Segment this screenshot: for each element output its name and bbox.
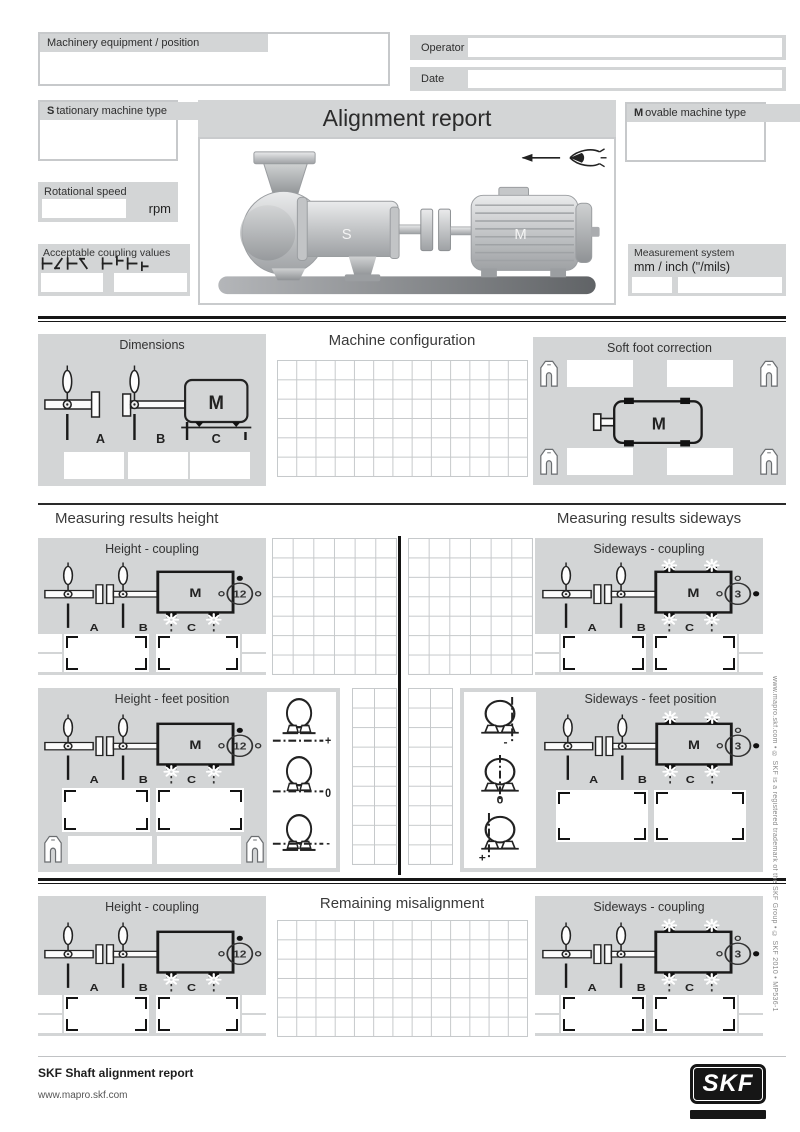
dimensions-schematic: MABC [41, 356, 263, 448]
svg-text:+: + [479, 853, 486, 864]
remaining-sideways-title: Sideways - coupling [535, 900, 763, 914]
vertical-divider [398, 536, 401, 875]
bracket-input-cell[interactable] [561, 995, 646, 1033]
svg-text:C: C [686, 775, 695, 786]
height-diagram-minus: - [269, 810, 333, 864]
svg-text:B: B [637, 623, 646, 634]
svg-text:A: A [90, 983, 100, 994]
machine-configuration-title: Machine configuration [277, 332, 527, 349]
height-feet-grid[interactable] [352, 688, 397, 865]
stationary-machine-type-field: Stationary machine type [38, 100, 178, 161]
remaining-sideways-schematic: ABC 3 [540, 918, 760, 996]
footer-divider [38, 1056, 786, 1057]
svg-text:0: 0 [497, 795, 504, 806]
rotational-speed-label: Rotational speed [44, 186, 127, 198]
svg-text:12: 12 [233, 589, 246, 600]
date-input[interactable] [468, 70, 782, 88]
soft-foot-title: Soft foot correction [533, 341, 786, 355]
svg-text:B: B [637, 983, 646, 994]
bracket-input-cell[interactable] [653, 634, 738, 672]
sideways-feet-input-front[interactable] [556, 790, 648, 842]
height-coupling-title: Height - coupling [38, 542, 266, 556]
sideways-coupling-inputs [535, 634, 763, 672]
remaining-sideways-inputs [535, 995, 763, 1033]
remaining-sideways-panel: Sideways - coupling ABC 3 [535, 896, 763, 1036]
height-feet-schematic: MABC 12 [42, 710, 262, 788]
height-coupling-grid[interactable] [272, 538, 397, 675]
bracket-input-cell[interactable] [64, 995, 149, 1033]
coupling-value-input-1[interactable] [41, 273, 103, 292]
bracket-input-cell[interactable] [561, 634, 646, 672]
svg-text:A: A [588, 623, 598, 634]
shim-icon [759, 447, 779, 476]
shim-icon [539, 359, 559, 388]
svg-text:A: A [96, 431, 105, 446]
sideways-coupling-panel: Sideways - coupling MABC 3 [535, 538, 763, 675]
dimension-input-c[interactable] [190, 452, 250, 479]
measurement-system-label: Measurement system [634, 247, 734, 259]
measurement-units: mm / inch ("/mils) [634, 260, 730, 274]
side-cell[interactable] [535, 995, 559, 1033]
operator-label: Operator [421, 35, 464, 60]
height-feet-input-front[interactable] [62, 788, 150, 832]
remaining-height-schematic: ABC 12 [42, 918, 262, 996]
sideways-feet-grid[interactable] [408, 688, 453, 865]
svg-text:C: C [187, 623, 197, 634]
height-reference-diagrams: + 0 - [267, 692, 336, 868]
svg-text:M: M [189, 738, 201, 752]
bracket-input-cell[interactable] [156, 634, 241, 672]
sideways-diagram-plus: + [468, 810, 532, 864]
svg-text:C: C [685, 983, 695, 994]
svg-text:A: A [90, 623, 100, 634]
soft-foot-input-rear-right[interactable] [667, 448, 733, 475]
sideways-feet-schematic: MABC 3 [542, 710, 760, 788]
bracket-input-cell[interactable] [156, 995, 241, 1033]
svg-text:C: C [685, 623, 695, 634]
skf-logo-text: SKF [690, 1064, 766, 1104]
dimensions-title: Dimensions [38, 338, 266, 352]
svg-text:3: 3 [734, 949, 741, 960]
side-cell[interactable] [242, 634, 266, 672]
acceptable-coupling-panel: Acceptable coupling values [38, 244, 190, 296]
height-feet-shim-input-front[interactable] [68, 836, 152, 864]
svg-text:C: C [187, 983, 197, 994]
svg-text:M: M [209, 392, 224, 413]
svg-text:0: 0 [325, 787, 331, 800]
remaining-height-inputs [38, 995, 266, 1033]
soft-foot-input-front-right[interactable] [667, 360, 733, 387]
movable-machine-type-field: Movable machine type [625, 102, 766, 162]
coupling-offset-min-icon [125, 255, 149, 272]
dimension-input-a[interactable] [64, 452, 124, 479]
side-cell[interactable] [535, 634, 559, 672]
measurement-input-inch[interactable] [678, 277, 782, 293]
svg-text:-: - [503, 737, 507, 748]
soft-foot-input-rear-left[interactable] [567, 448, 633, 475]
svg-text:M: M [688, 738, 700, 752]
height-diagram-zero: 0 [269, 752, 333, 806]
soft-foot-input-front-left[interactable] [567, 360, 633, 387]
svg-text:B: B [638, 775, 647, 786]
height-diagram-plus: + [269, 694, 333, 748]
svg-text:-: - [326, 837, 330, 850]
alignment-report-panel: Alignment report S M [198, 100, 616, 305]
date-field: Date [410, 67, 786, 91]
machinery-equipment-label: Machinery equipment / position [40, 34, 268, 52]
dimensions-panel: Dimensions MABC [38, 334, 266, 486]
side-cell[interactable] [739, 634, 763, 672]
sideways-diagram-zero: 0 [468, 752, 532, 806]
svg-text:S: S [342, 227, 352, 243]
bracket-input-cell[interactable] [64, 634, 149, 672]
remaining-misalignment-title: Remaining misalignment [277, 895, 527, 912]
side-cell[interactable] [38, 995, 62, 1033]
movable-machine-type-label: Movable machine type [627, 104, 800, 122]
sideways-coupling-schematic: MABC 3 [540, 558, 760, 636]
side-cell[interactable] [242, 995, 266, 1033]
measurement-input-mm[interactable] [632, 277, 672, 293]
footer-url: www.mapro.skf.com [38, 1090, 127, 1101]
section-divider-1 [38, 316, 786, 322]
remaining-misalignment-grid[interactable] [277, 920, 528, 1037]
svg-text:A: A [90, 775, 100, 786]
svg-text:M: M [189, 586, 201, 600]
sideways-diagram-minus: - [468, 694, 532, 748]
svg-text:M: M [652, 414, 666, 433]
sideways-feet-input-rear[interactable] [654, 790, 746, 842]
svg-text:C: C [212, 431, 221, 446]
height-coupling-panel: Height - coupling MABC 12 [38, 538, 266, 675]
side-cell[interactable] [739, 995, 763, 1033]
height-coupling-schematic: MABC 12 [42, 558, 262, 636]
height-feet-shim-input-rear[interactable] [157, 836, 241, 864]
sideways-feet-title: Sideways - feet position [538, 692, 763, 706]
dimension-input-b[interactable] [128, 452, 188, 479]
soft-foot-panel: Soft foot correction M [533, 337, 786, 485]
section-divider-2 [38, 503, 786, 505]
pump-motor-illustration: S M [201, 140, 613, 302]
remaining-height-title: Height - coupling [38, 900, 266, 914]
sideways-coupling-grid[interactable] [408, 538, 533, 675]
svg-text:12: 12 [233, 741, 246, 752]
operator-input[interactable] [468, 38, 782, 57]
shim-icon [245, 834, 265, 864]
skf-logo: SKF [690, 1064, 766, 1104]
height-feet-title: Height - feet position [38, 692, 306, 706]
svg-text:3: 3 [735, 741, 742, 752]
skf-logo-bar [690, 1110, 766, 1119]
height-coupling-inputs [38, 634, 266, 672]
height-feet-panel: Height - feet position MABC 12 + 0 - [38, 688, 340, 872]
rpm-unit: rpm [149, 201, 171, 216]
coupling-angular-min-icon [65, 255, 89, 272]
footer-product-name: SKF Shaft alignment report [38, 1066, 193, 1080]
svg-text:12: 12 [233, 949, 246, 960]
date-label: Date [421, 67, 444, 91]
svg-text:B: B [139, 623, 148, 634]
operator-field: Operator [410, 35, 786, 60]
svg-text:3: 3 [734, 589, 741, 600]
svg-text:C: C [187, 775, 197, 786]
side-note: www.mapro.skf.com • ® SKF is a registere… [771, 676, 778, 1072]
report-title: Alignment report [198, 100, 616, 137]
shim-icon [539, 447, 559, 476]
height-feet-input-rear[interactable] [156, 788, 244, 832]
svg-text:+: + [325, 735, 331, 748]
sideways-feet-panel: - 0 + Sideways - feet position MABC 3 [460, 688, 763, 872]
sideways-coupling-title: Sideways - coupling [535, 542, 763, 556]
rotational-speed-input[interactable] [42, 199, 126, 218]
svg-text:B: B [139, 775, 148, 786]
svg-text:M: M [514, 227, 526, 243]
coupling-angular-max-icon [40, 255, 64, 272]
remaining-height-panel: Height - coupling ABC 12 [38, 896, 266, 1036]
rotational-speed-field: Rotational speed rpm [38, 182, 178, 222]
measuring-sideways-heading: Measuring results sideways [535, 510, 763, 527]
machinery-equipment-field: Machinery equipment / position [38, 32, 390, 86]
svg-text:M: M [687, 586, 699, 600]
svg-text:B: B [156, 431, 165, 446]
side-cell[interactable] [38, 634, 62, 672]
svg-text:A: A [589, 775, 599, 786]
coupling-value-input-2[interactable] [114, 273, 187, 292]
machine-configuration-grid[interactable] [277, 360, 528, 477]
bracket-input-cell[interactable] [653, 995, 738, 1033]
coupling-offset-max-icon [100, 255, 124, 272]
shim-icon [759, 359, 779, 388]
soft-foot-machine-schematic: M [591, 395, 707, 451]
measurement-system-panel: Measurement system mm / inch ("/mils) [628, 244, 786, 296]
view-direction-icon [522, 149, 607, 167]
shim-icon [43, 834, 63, 864]
svg-text:B: B [139, 983, 148, 994]
sideways-reference-diagrams: - 0 + [464, 692, 536, 868]
alignment-report-page: Machinery equipment / position Operator … [0, 0, 800, 1132]
svg-text:A: A [588, 983, 598, 994]
section-divider-3 [38, 878, 786, 884]
measuring-height-heading: Measuring results height [55, 510, 218, 527]
